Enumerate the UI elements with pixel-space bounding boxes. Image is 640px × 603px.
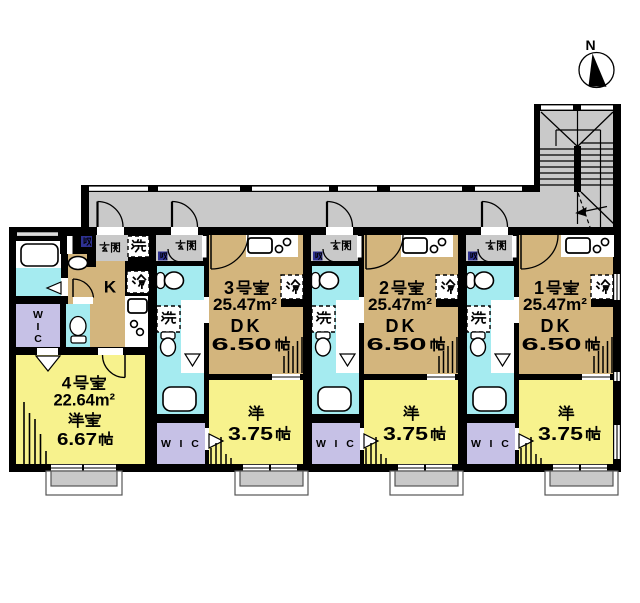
svg-text:K: K [247, 316, 260, 336]
svg-text:6.50: 6.50 [212, 334, 272, 354]
svg-text:K: K [402, 316, 415, 336]
svg-text:D: D [231, 316, 244, 336]
svg-text:6.50: 6.50 [522, 334, 582, 354]
svg-text:D: D [386, 316, 399, 336]
svg-text:I: I [180, 438, 183, 450]
svg-text:I: I [490, 438, 493, 450]
svg-text:N: N [585, 37, 595, 53]
svg-text:3.75: 3.75 [228, 424, 273, 444]
svg-text:C: C [191, 438, 199, 450]
svg-text:6.67: 6.67 [57, 429, 97, 449]
svg-text:25.47m²: 25.47m² [523, 295, 587, 314]
svg-text:W: W [161, 438, 171, 450]
svg-text:W: W [33, 309, 43, 321]
svg-text:K: K [557, 316, 570, 336]
svg-text:K: K [104, 278, 117, 297]
svg-text:W: W [316, 438, 326, 450]
svg-text:25.47m²: 25.47m² [213, 295, 277, 314]
svg-text:3.75: 3.75 [538, 424, 583, 444]
svg-text:D: D [541, 316, 554, 336]
svg-text:C: C [501, 438, 509, 450]
svg-text:25.47m²: 25.47m² [368, 295, 432, 314]
svg-text:I: I [37, 321, 40, 333]
svg-text:C: C [34, 333, 42, 345]
svg-text:W: W [471, 438, 481, 450]
svg-text:22.64m²: 22.64m² [54, 391, 116, 410]
svg-text:C: C [346, 438, 354, 450]
svg-text:I: I [335, 438, 338, 450]
svg-text:6.50: 6.50 [367, 334, 427, 354]
svg-text:3.75: 3.75 [383, 424, 428, 444]
